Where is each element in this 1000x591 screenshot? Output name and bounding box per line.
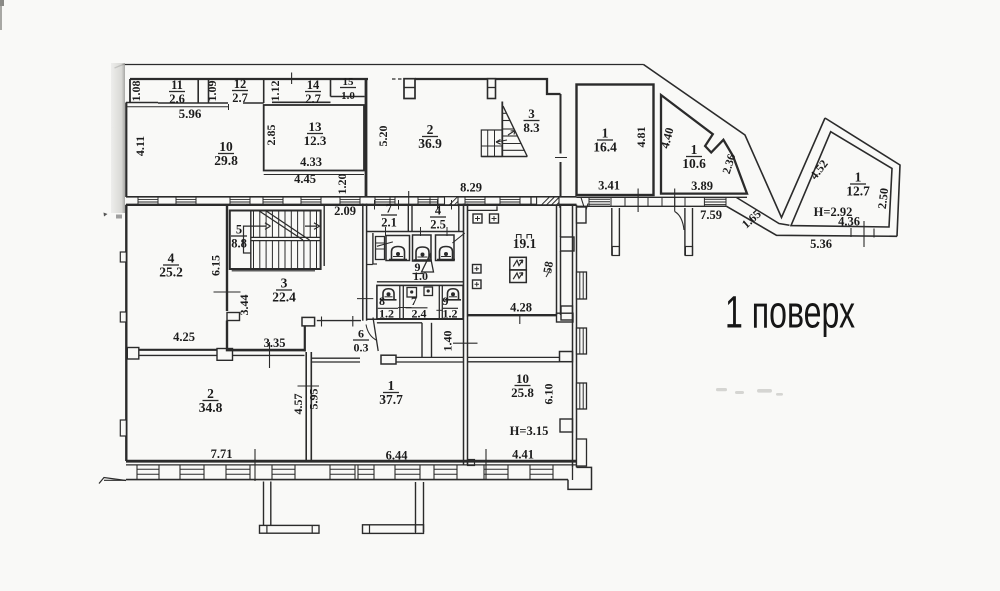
svg-text:2.85: 2.85 [264, 125, 278, 146]
svg-text:10: 10 [219, 139, 233, 154]
svg-text:14: 14 [307, 78, 320, 92]
svg-text:1.20: 1.20 [335, 174, 349, 195]
svg-text:6.10: 6.10 [542, 384, 556, 405]
svg-text:22.4: 22.4 [272, 290, 296, 305]
svg-text:5.20: 5.20 [376, 126, 390, 147]
svg-text:25.2: 25.2 [159, 265, 183, 280]
svg-text:4.28: 4.28 [510, 301, 532, 315]
svg-text:4: 4 [168, 251, 175, 266]
svg-text:2.4: 2.4 [412, 307, 427, 321]
svg-text:1: 1 [388, 378, 395, 393]
svg-text:2.7: 2.7 [305, 92, 321, 106]
svg-text:58: 58 [540, 260, 556, 274]
svg-text:8.29: 8.29 [460, 181, 482, 195]
svg-text:5: 5 [236, 223, 242, 237]
svg-text:1.40: 1.40 [441, 331, 455, 352]
svg-text:1.09: 1.09 [205, 81, 219, 102]
svg-text:36.9: 36.9 [418, 136, 442, 151]
svg-text:29.8: 29.8 [214, 153, 238, 168]
svg-text:H=3.15: H=3.15 [510, 424, 549, 438]
svg-text:12: 12 [234, 77, 247, 91]
svg-text:3.44: 3.44 [237, 295, 251, 316]
svg-text:3: 3 [281, 276, 288, 291]
svg-text:7: 7 [386, 202, 392, 216]
svg-text:4.33: 4.33 [300, 155, 322, 169]
svg-text:25.8: 25.8 [511, 385, 534, 400]
svg-text:7.71: 7.71 [211, 447, 233, 461]
svg-text:4.57: 4.57 [291, 394, 305, 415]
svg-text:34.8: 34.8 [199, 400, 223, 415]
svg-text:7.59: 7.59 [700, 208, 722, 222]
svg-text:1.12: 1.12 [268, 81, 282, 102]
svg-text:2.50: 2.50 [875, 187, 891, 210]
svg-text:6: 6 [358, 327, 364, 341]
svg-text:2: 2 [427, 122, 434, 137]
svg-text:8.3: 8.3 [523, 120, 540, 135]
svg-text:4.36: 4.36 [838, 215, 860, 229]
svg-text:3.89: 3.89 [691, 179, 713, 193]
svg-text:16.4: 16.4 [593, 140, 617, 155]
svg-text:1.08: 1.08 [129, 81, 143, 102]
svg-text:4.45: 4.45 [294, 172, 316, 186]
svg-text:2.36: 2.36 [721, 153, 738, 176]
svg-text:4.11: 4.11 [133, 136, 147, 156]
svg-text:1.0: 1.0 [413, 269, 428, 283]
svg-text:19.1: 19.1 [513, 236, 537, 251]
svg-text:1: 1 [691, 142, 698, 157]
svg-text:2.09: 2.09 [334, 204, 356, 218]
svg-text:5.96: 5.96 [179, 106, 202, 121]
svg-text:4.25: 4.25 [173, 330, 195, 344]
svg-text:2.7: 2.7 [232, 91, 248, 105]
svg-text:4: 4 [435, 204, 442, 218]
svg-text:13: 13 [309, 119, 323, 134]
svg-text:5.95: 5.95 [307, 389, 321, 410]
svg-text:37.7: 37.7 [379, 392, 403, 407]
svg-text:2.5: 2.5 [430, 218, 446, 232]
svg-text:0.3: 0.3 [354, 341, 369, 355]
svg-text:3.35: 3.35 [264, 336, 286, 350]
svg-text:1.2: 1.2 [443, 307, 458, 321]
svg-text:2.1: 2.1 [381, 216, 397, 230]
svg-text:12.7: 12.7 [846, 184, 870, 199]
svg-text:2: 2 [207, 386, 214, 401]
svg-text:3.41: 3.41 [598, 179, 620, 193]
svg-text:5.36: 5.36 [810, 237, 832, 251]
svg-text:2.6: 2.6 [169, 92, 185, 106]
svg-text:1.0: 1.0 [341, 90, 355, 102]
svg-text:1: 1 [602, 126, 609, 141]
svg-text:12.3: 12.3 [304, 133, 327, 148]
svg-text:3: 3 [528, 106, 535, 121]
svg-text:1: 1 [855, 170, 862, 185]
svg-text:8.8: 8.8 [231, 237, 247, 251]
svg-text:1.65: 1.65 [739, 207, 764, 231]
svg-text:4.81: 4.81 [634, 127, 648, 148]
svg-text:4.41: 4.41 [512, 448, 534, 462]
svg-text:10.6: 10.6 [682, 156, 706, 171]
svg-text:10: 10 [516, 371, 529, 386]
svg-text:1 поверх: 1 поверх [725, 287, 855, 338]
svg-text:15: 15 [343, 76, 355, 88]
svg-text:11: 11 [171, 78, 183, 92]
svg-text:6.15: 6.15 [209, 255, 223, 276]
svg-text:1.2: 1.2 [379, 307, 394, 321]
